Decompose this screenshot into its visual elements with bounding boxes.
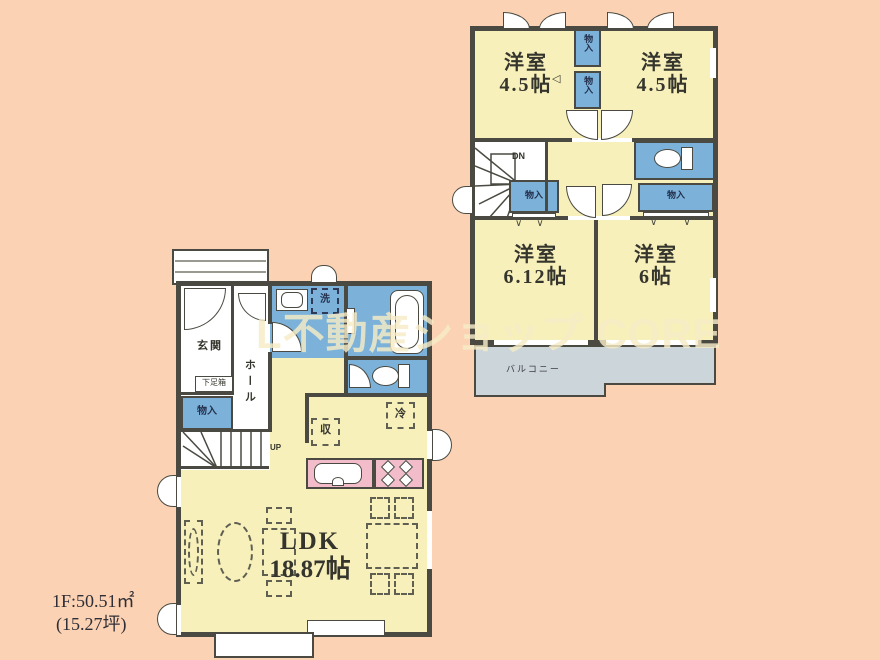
chair-outline [266, 507, 292, 524]
closet-label: 物入 [640, 190, 712, 200]
toilet-tank-icon [398, 364, 410, 388]
room-label: 洋室 6.12帖 [478, 244, 594, 289]
area-note: 1F:50.51㎡ (15.27坪) [52, 590, 135, 637]
ldk-name: LDK [250, 528, 370, 556]
closet-1f: 物入 [181, 396, 233, 430]
dining-chair-outline [370, 573, 390, 595]
stairs-down-label: DN [512, 151, 525, 161]
room-label: 洋室 4.5帖 [614, 52, 712, 97]
window [452, 186, 473, 214]
closet-2f-right: 物入 [638, 183, 714, 212]
pantry-storage: 収 [311, 418, 340, 446]
door-arc [157, 603, 177, 635]
terrace-step [214, 632, 314, 658]
pantry-storage-label: 収 [313, 424, 338, 436]
dining-chair-outline [394, 573, 414, 595]
wall-segment [181, 392, 234, 395]
porch-step-line [175, 260, 266, 262]
window [647, 12, 674, 29]
room-name: 洋室 [600, 244, 712, 266]
dining-chair-outline [394, 497, 414, 519]
toilet-bowl-icon [372, 366, 399, 386]
watermark: L不動産ショップ CORE [256, 300, 722, 361]
room-label: 洋室 4.5帖 [478, 52, 574, 97]
door-arc [432, 429, 452, 461]
closet-label: 物入 [183, 406, 231, 417]
room-size: 6.12帖 [478, 266, 594, 288]
door-arc [157, 475, 177, 507]
window [307, 620, 385, 636]
kitchen-stove-counter [374, 458, 424, 489]
floor-plan-canvas: 物入 物入 ◁ DN 物入 ∨∨ 物入 ∨∨ [0, 0, 880, 660]
faucet-icon [332, 477, 344, 486]
table-oval-outline [217, 522, 253, 582]
stairs-up-label: UP [270, 444, 281, 453]
dining-table-outline [366, 523, 418, 569]
wall-segment [181, 466, 269, 469]
closet-label: 物入 [583, 76, 593, 94]
window [539, 12, 566, 29]
stair-treads-icon [181, 432, 269, 468]
room-size: 4.5帖 [478, 74, 574, 96]
ldk-size: 18.87帖 [250, 556, 370, 584]
entrance-label: 玄関 [188, 340, 232, 352]
room-name: 洋室 [478, 52, 574, 74]
area-line1: 1F:50.51㎡ [52, 590, 135, 613]
dining-chair-outline [370, 497, 390, 519]
window [503, 12, 530, 29]
room-size: 6帖 [600, 266, 712, 288]
hanger-marks-icon: ∨∨ [650, 217, 717, 228]
wall-segment [545, 142, 548, 218]
area-line2: (15.27坪) [52, 613, 135, 636]
ldk-label: LDK 18.87帖 [250, 528, 370, 584]
refrigerator-label: 冷 [388, 408, 413, 420]
room-label: 洋室 6帖 [600, 244, 712, 289]
balcony-label: バルコニー [506, 364, 561, 374]
closet-label: 物入 [511, 190, 557, 200]
shoe-box-label: 下足箱 [196, 379, 232, 388]
closet-2f-mid: 物入 [509, 180, 559, 213]
window [427, 511, 432, 569]
wall-segment [305, 393, 309, 443]
toilet-bowl-icon [654, 149, 681, 168]
toilet-tank-icon [681, 147, 693, 170]
porch-step-line [175, 271, 266, 273]
wall-segment [181, 429, 269, 432]
room-name: 洋室 [478, 244, 594, 266]
wall-segment [268, 352, 272, 432]
wall-segment [344, 360, 348, 393]
closet-2f-a: 物入 [574, 29, 601, 67]
refrigerator: 冷 [386, 402, 415, 429]
door-opening [568, 216, 630, 220]
room-size: 4.5帖 [614, 74, 712, 96]
wall-segment [305, 393, 432, 397]
window [311, 265, 337, 283]
hall-label: ホール [243, 345, 255, 421]
staircase-1f [181, 432, 269, 468]
hanger-marks-icon: ∨∨ [515, 218, 558, 229]
window [607, 12, 634, 29]
room-name: 洋室 [614, 52, 712, 74]
entrance-porch [172, 249, 269, 285]
closet-2f-b: 物入 [574, 71, 601, 109]
closet-label: 物入 [583, 34, 593, 52]
tv-outline [188, 528, 199, 576]
shoe-box: 下足箱 [195, 376, 233, 392]
